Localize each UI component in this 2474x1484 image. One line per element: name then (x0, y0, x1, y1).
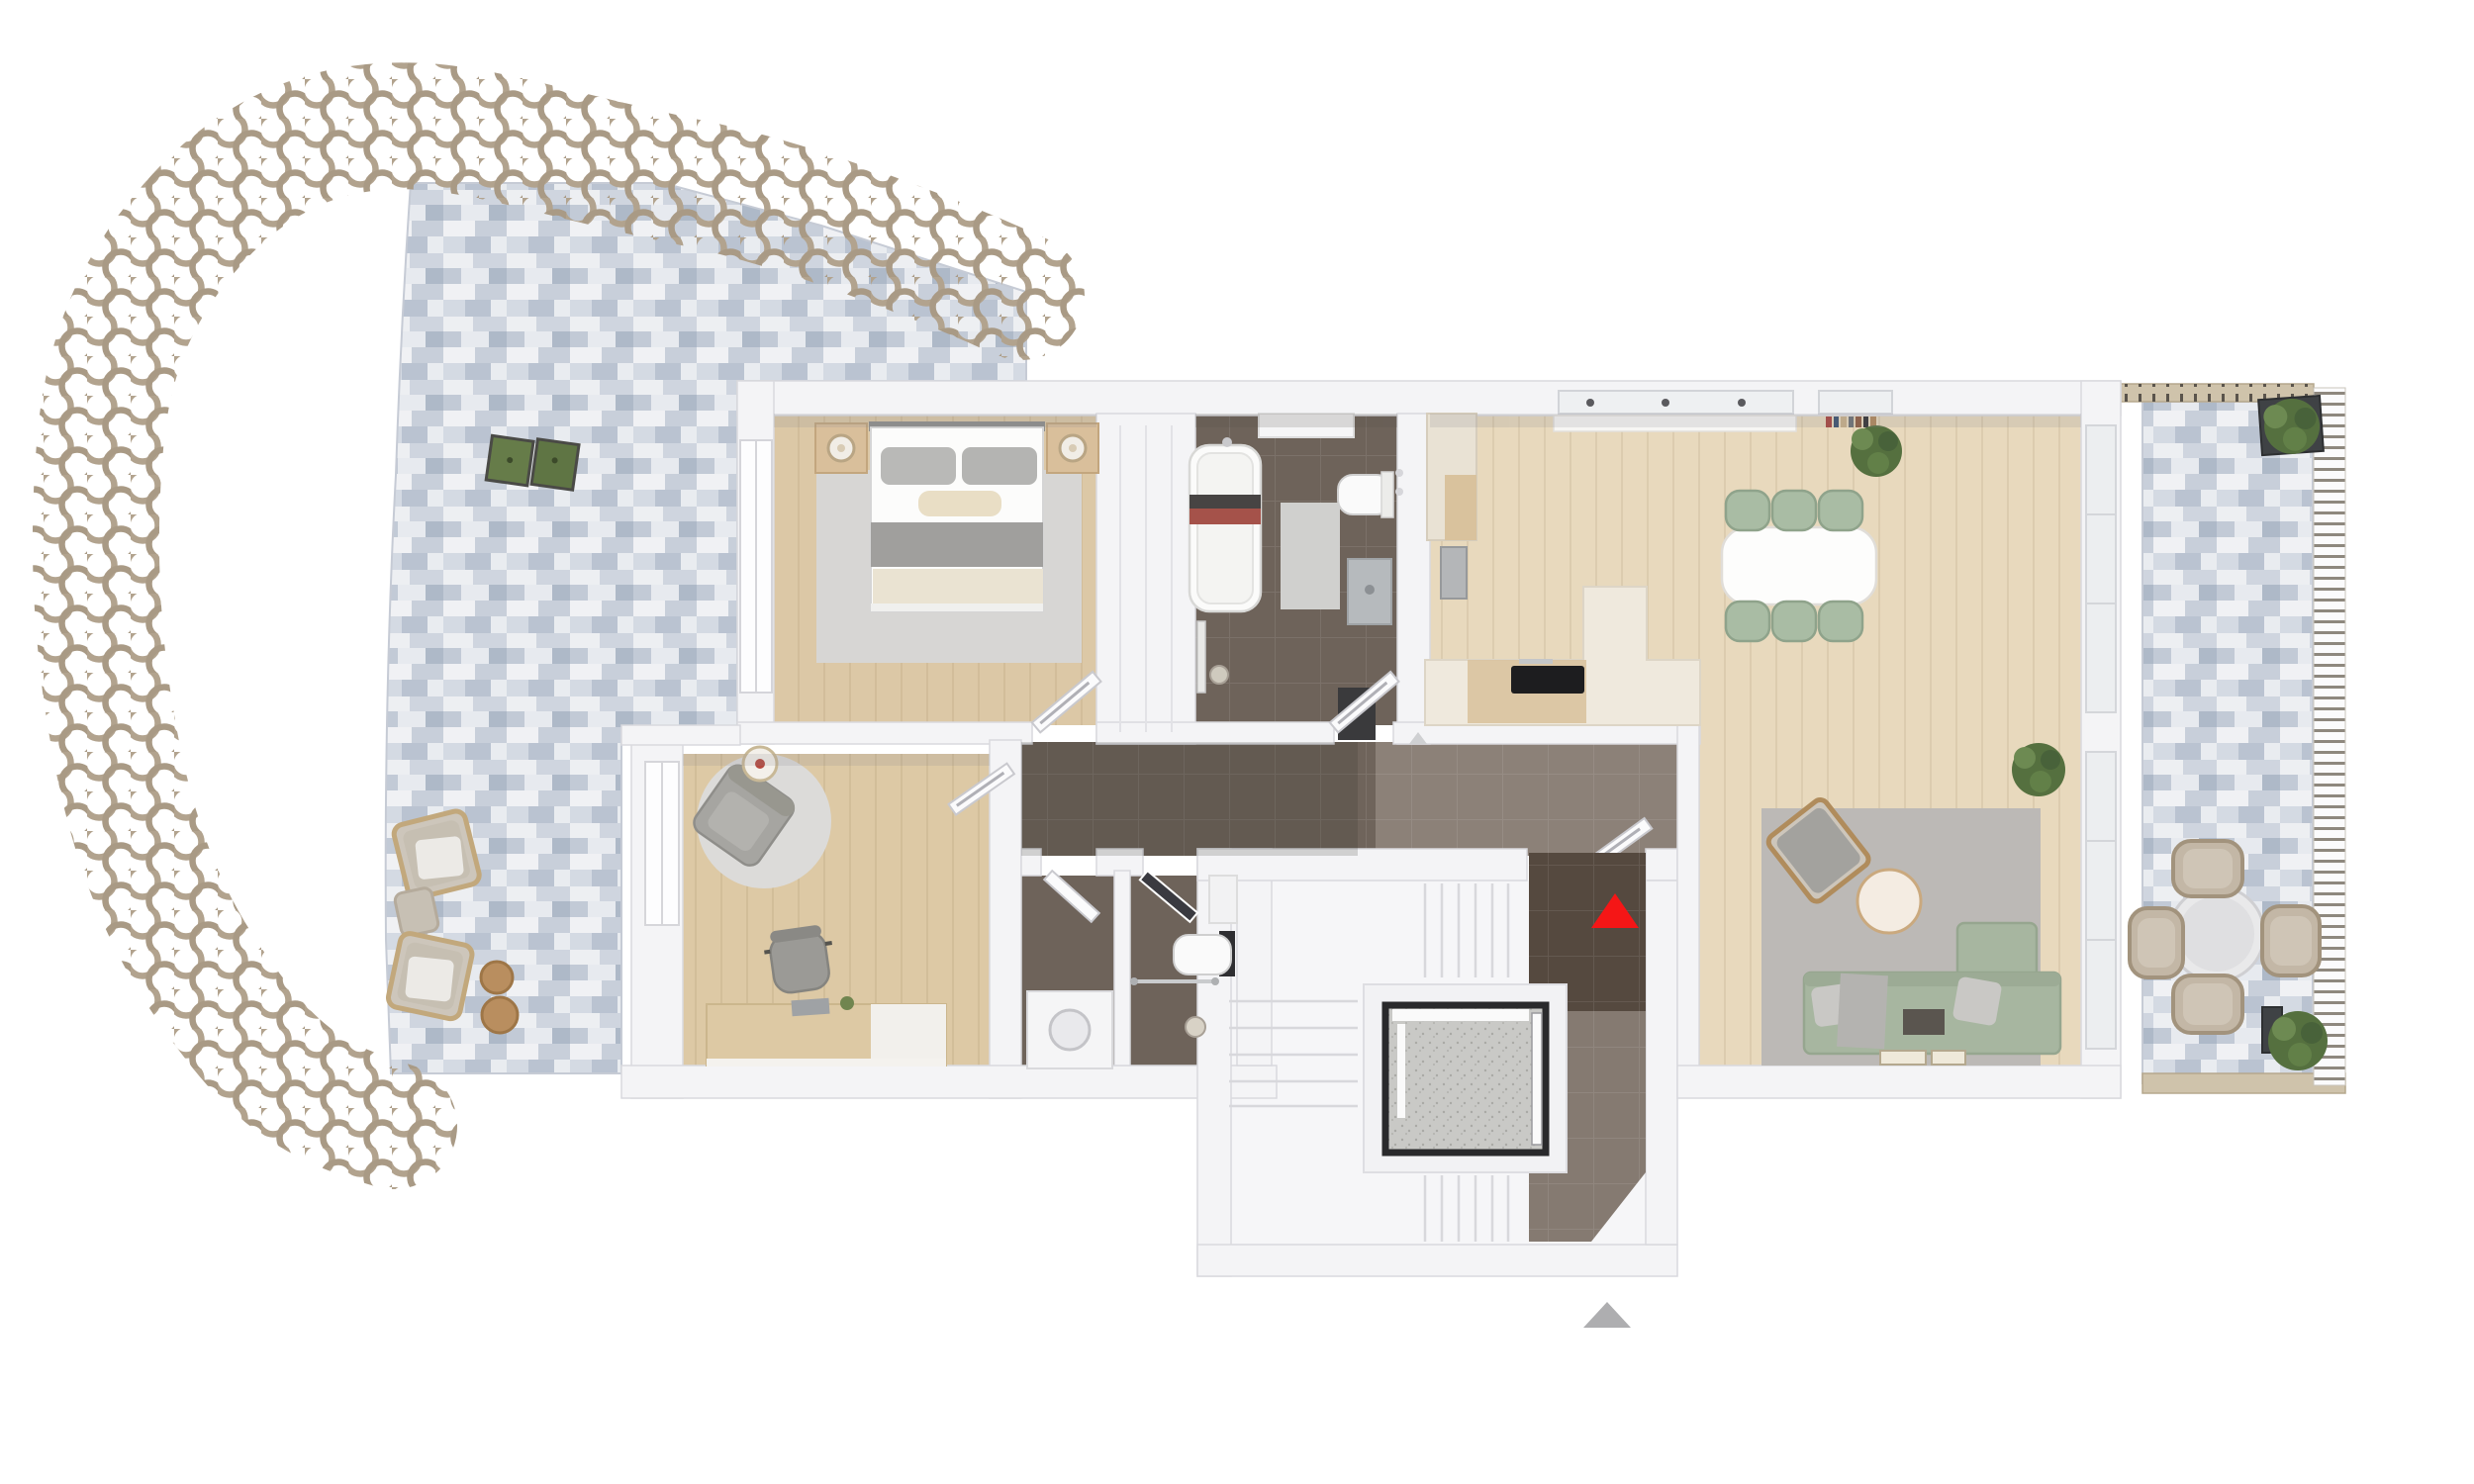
elevator-door-right (1532, 1013, 1542, 1145)
bed-foot-rail (871, 603, 1043, 611)
bathtub-towel-red (1189, 509, 1261, 524)
bathtub-inner (1197, 453, 1253, 603)
wicker-chair-left (2130, 908, 2183, 977)
wicker-chair-right (2262, 906, 2320, 975)
basin-faucet (1365, 585, 1375, 595)
wc-floor-drain (1186, 1017, 1205, 1037)
kitchen-corner-plant (1851, 425, 1902, 477)
floor-book-1 (1880, 1051, 1926, 1065)
floor-plan-svg (0, 0, 2474, 1484)
built-in-oven (1441, 547, 1467, 599)
wc-rail-post-2 (1211, 977, 1219, 985)
cooktop (1511, 666, 1584, 694)
floor-plan-stage (0, 0, 2474, 1484)
dining-chairs-top (1726, 491, 1862, 530)
dining-table (1722, 527, 1876, 604)
shower-linear-drain (1197, 621, 1205, 693)
cooktop-handle (1519, 659, 1553, 664)
wall-south-seg2 (1096, 722, 1334, 744)
lounge-chair-1 (392, 809, 481, 900)
wall-wc-right (1237, 871, 1272, 1066)
elevator-cab (1385, 1005, 1546, 1153)
gray-arrow-bottom (1583, 1302, 1631, 1328)
outdoor-table-top (2179, 896, 2254, 972)
wc-shelf (1209, 876, 1237, 923)
shower-round-drain (1210, 666, 1228, 684)
living-window-2 (2086, 752, 2116, 1049)
footstool (394, 886, 439, 937)
terrace-right (2083, 384, 2345, 1093)
wall-bottom-left (621, 1066, 1277, 1098)
wall-hook-2 (1395, 488, 1403, 496)
lounge-chair-2 (387, 932, 474, 1021)
slat-railing (2314, 388, 2345, 1085)
wc-rail-post-1 (1130, 977, 1138, 985)
dining-chairs-bottom (1726, 602, 1862, 641)
window-handle-1 (1586, 399, 1594, 407)
wicker-chair-bottom (2173, 975, 2242, 1033)
office-laptop (791, 998, 829, 1017)
wall-stair-top-2 (1646, 849, 1677, 881)
kitchen-cabinet-wood (1445, 475, 1476, 540)
elevator-door-top (1392, 1009, 1529, 1021)
wc-toilet (1174, 935, 1231, 974)
wall-south-seg1 (737, 722, 1032, 744)
bathmat (1281, 503, 1340, 609)
wall-top (737, 381, 2121, 416)
lamp-right-top (1069, 444, 1077, 452)
wall-living-bottom (1677, 1066, 2121, 1098)
bathtub-towel-dark (1189, 495, 1261, 509)
tub-faucet (1222, 437, 1232, 447)
toilet-tank-main (1381, 472, 1393, 517)
bed-blanket-gray (871, 522, 1043, 567)
side-table-1 (481, 962, 513, 993)
bed-blanket-cream (873, 569, 1043, 604)
sofa-tray (1903, 1009, 1945, 1035)
kitchen-window-2 (1819, 391, 1892, 414)
living-plant (2012, 743, 2065, 796)
wall-storage-wc (1114, 871, 1130, 1066)
lamp-left-top (837, 444, 845, 452)
office-desk-edge (707, 1059, 946, 1067)
bed-pillow-right (962, 447, 1037, 485)
office-desk-white (871, 1004, 946, 1066)
wall-living-left (1677, 725, 1699, 1068)
bed-pillow-left (881, 447, 956, 485)
wall-hook-1 (1395, 469, 1403, 477)
side-table-2 (482, 997, 518, 1033)
window-handle-3 (1738, 399, 1746, 407)
wicker-chair-top (2173, 841, 2242, 896)
coffee-table (1857, 870, 1921, 933)
sofa-throw (1837, 974, 1888, 1049)
bush-planter-top (2258, 396, 2324, 456)
bed-lumbar-pillow (918, 491, 1001, 516)
washing-machine-door (1050, 1010, 1090, 1050)
elevator-handrail (1397, 1024, 1405, 1118)
office-desk-plant (840, 996, 854, 1010)
wall-stair-right (1646, 881, 1677, 1245)
wall-office-topleft (621, 725, 740, 745)
window-handle-2 (1662, 399, 1669, 407)
sofa-pillow-right (1952, 976, 2003, 1027)
living-window-1 (2086, 425, 2116, 712)
wall-stair-bottom (1197, 1245, 1677, 1276)
wall-office-right (990, 740, 1021, 1098)
floor-book-2 (1932, 1051, 1965, 1065)
